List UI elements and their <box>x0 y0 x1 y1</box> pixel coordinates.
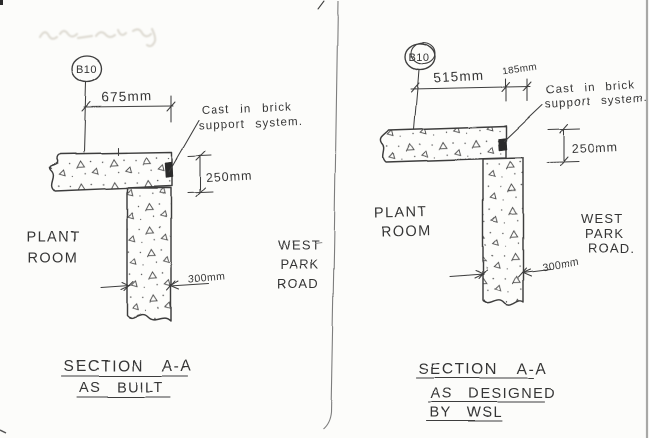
road-text: WEST <box>278 238 320 253</box>
drawing-title-as-designed: SECTION A-A AS DESIGNED BY WSL <box>416 361 556 421</box>
road-text: WEST <box>581 211 623 226</box>
road-text: PARK <box>585 226 624 241</box>
note-text: support system. <box>199 116 303 132</box>
west-park-road-label: WEST PARK ROAD. <box>581 211 635 256</box>
gridline-bubble-label: B10 <box>408 52 429 64</box>
dim-label: 250mm <box>205 169 252 185</box>
note-cast-in-brick: Cast in brick support system. <box>169 102 303 172</box>
room-text: PLANT <box>374 204 428 221</box>
dim-label: 250mm <box>571 140 618 156</box>
west-park-road-label: WEST PARK ROAD <box>277 238 320 291</box>
road-text: PARK <box>280 257 319 272</box>
scan-artifact-slash <box>318 1 324 9</box>
dim-label: 515mm <box>433 68 485 86</box>
concrete-wall <box>127 188 171 321</box>
title-text: AS DESIGNED <box>431 386 556 402</box>
leader-line <box>504 105 542 141</box>
dim-line <box>411 87 530 90</box>
gridline <box>414 70 419 129</box>
road-text: ROAD. <box>588 241 635 256</box>
title-text: BY WSL <box>430 405 503 421</box>
dimension-675mm: 675mm <box>82 88 175 122</box>
room-text: ROOM <box>28 250 79 266</box>
concrete-slab <box>381 126 506 162</box>
dimension-250mm: 250mm <box>188 151 253 197</box>
room-text: PLANT <box>27 229 81 245</box>
dim-label: 300mm <box>188 270 226 285</box>
dim-label: 300mm <box>541 256 579 274</box>
gridline-bubble-label: B10 <box>76 64 97 76</box>
concrete-wall <box>483 158 523 305</box>
dim-label: 185mm <box>502 62 538 78</box>
room-text: ROOM <box>381 223 432 240</box>
drawing-title-as-built: SECTION A-A AS BUILT <box>62 358 193 397</box>
dimension-250mm: 250mm <box>547 124 619 166</box>
dim-line <box>84 106 173 107</box>
title-text: SECTION A-A <box>418 361 547 378</box>
scan-artifact-mark <box>0 430 6 433</box>
right-drawing-as-designed: B10 515mm 185mm Cast in brick support sy… <box>374 43 649 421</box>
concrete-slab <box>50 152 172 191</box>
gridline <box>84 82 86 152</box>
plant-room-label: PLANT ROOM <box>27 229 81 266</box>
dimension-515mm-185mm: 515mm 185mm <box>411 62 538 101</box>
note-text: Cast in brick <box>202 102 292 117</box>
page-fold-divider <box>323 1 338 429</box>
plant-room-label: PLANT ROOM <box>374 204 432 240</box>
title-text: SECTION A-A <box>64 358 193 375</box>
cast-in-support-block <box>165 162 173 178</box>
left-drawing-as-built: B10 675mm Cast in brick support system. <box>27 56 320 397</box>
leader-line <box>169 120 199 172</box>
scan-artifact-corner <box>0 0 3 5</box>
title-text: AS BUILT <box>79 380 164 396</box>
erased-pencil-marks <box>40 29 155 46</box>
road-text: ROAD <box>277 276 319 291</box>
scanned-sketch-page: B10 675mm Cast in brick support system. <box>0 0 649 438</box>
dim-label: 675mm <box>101 88 153 105</box>
